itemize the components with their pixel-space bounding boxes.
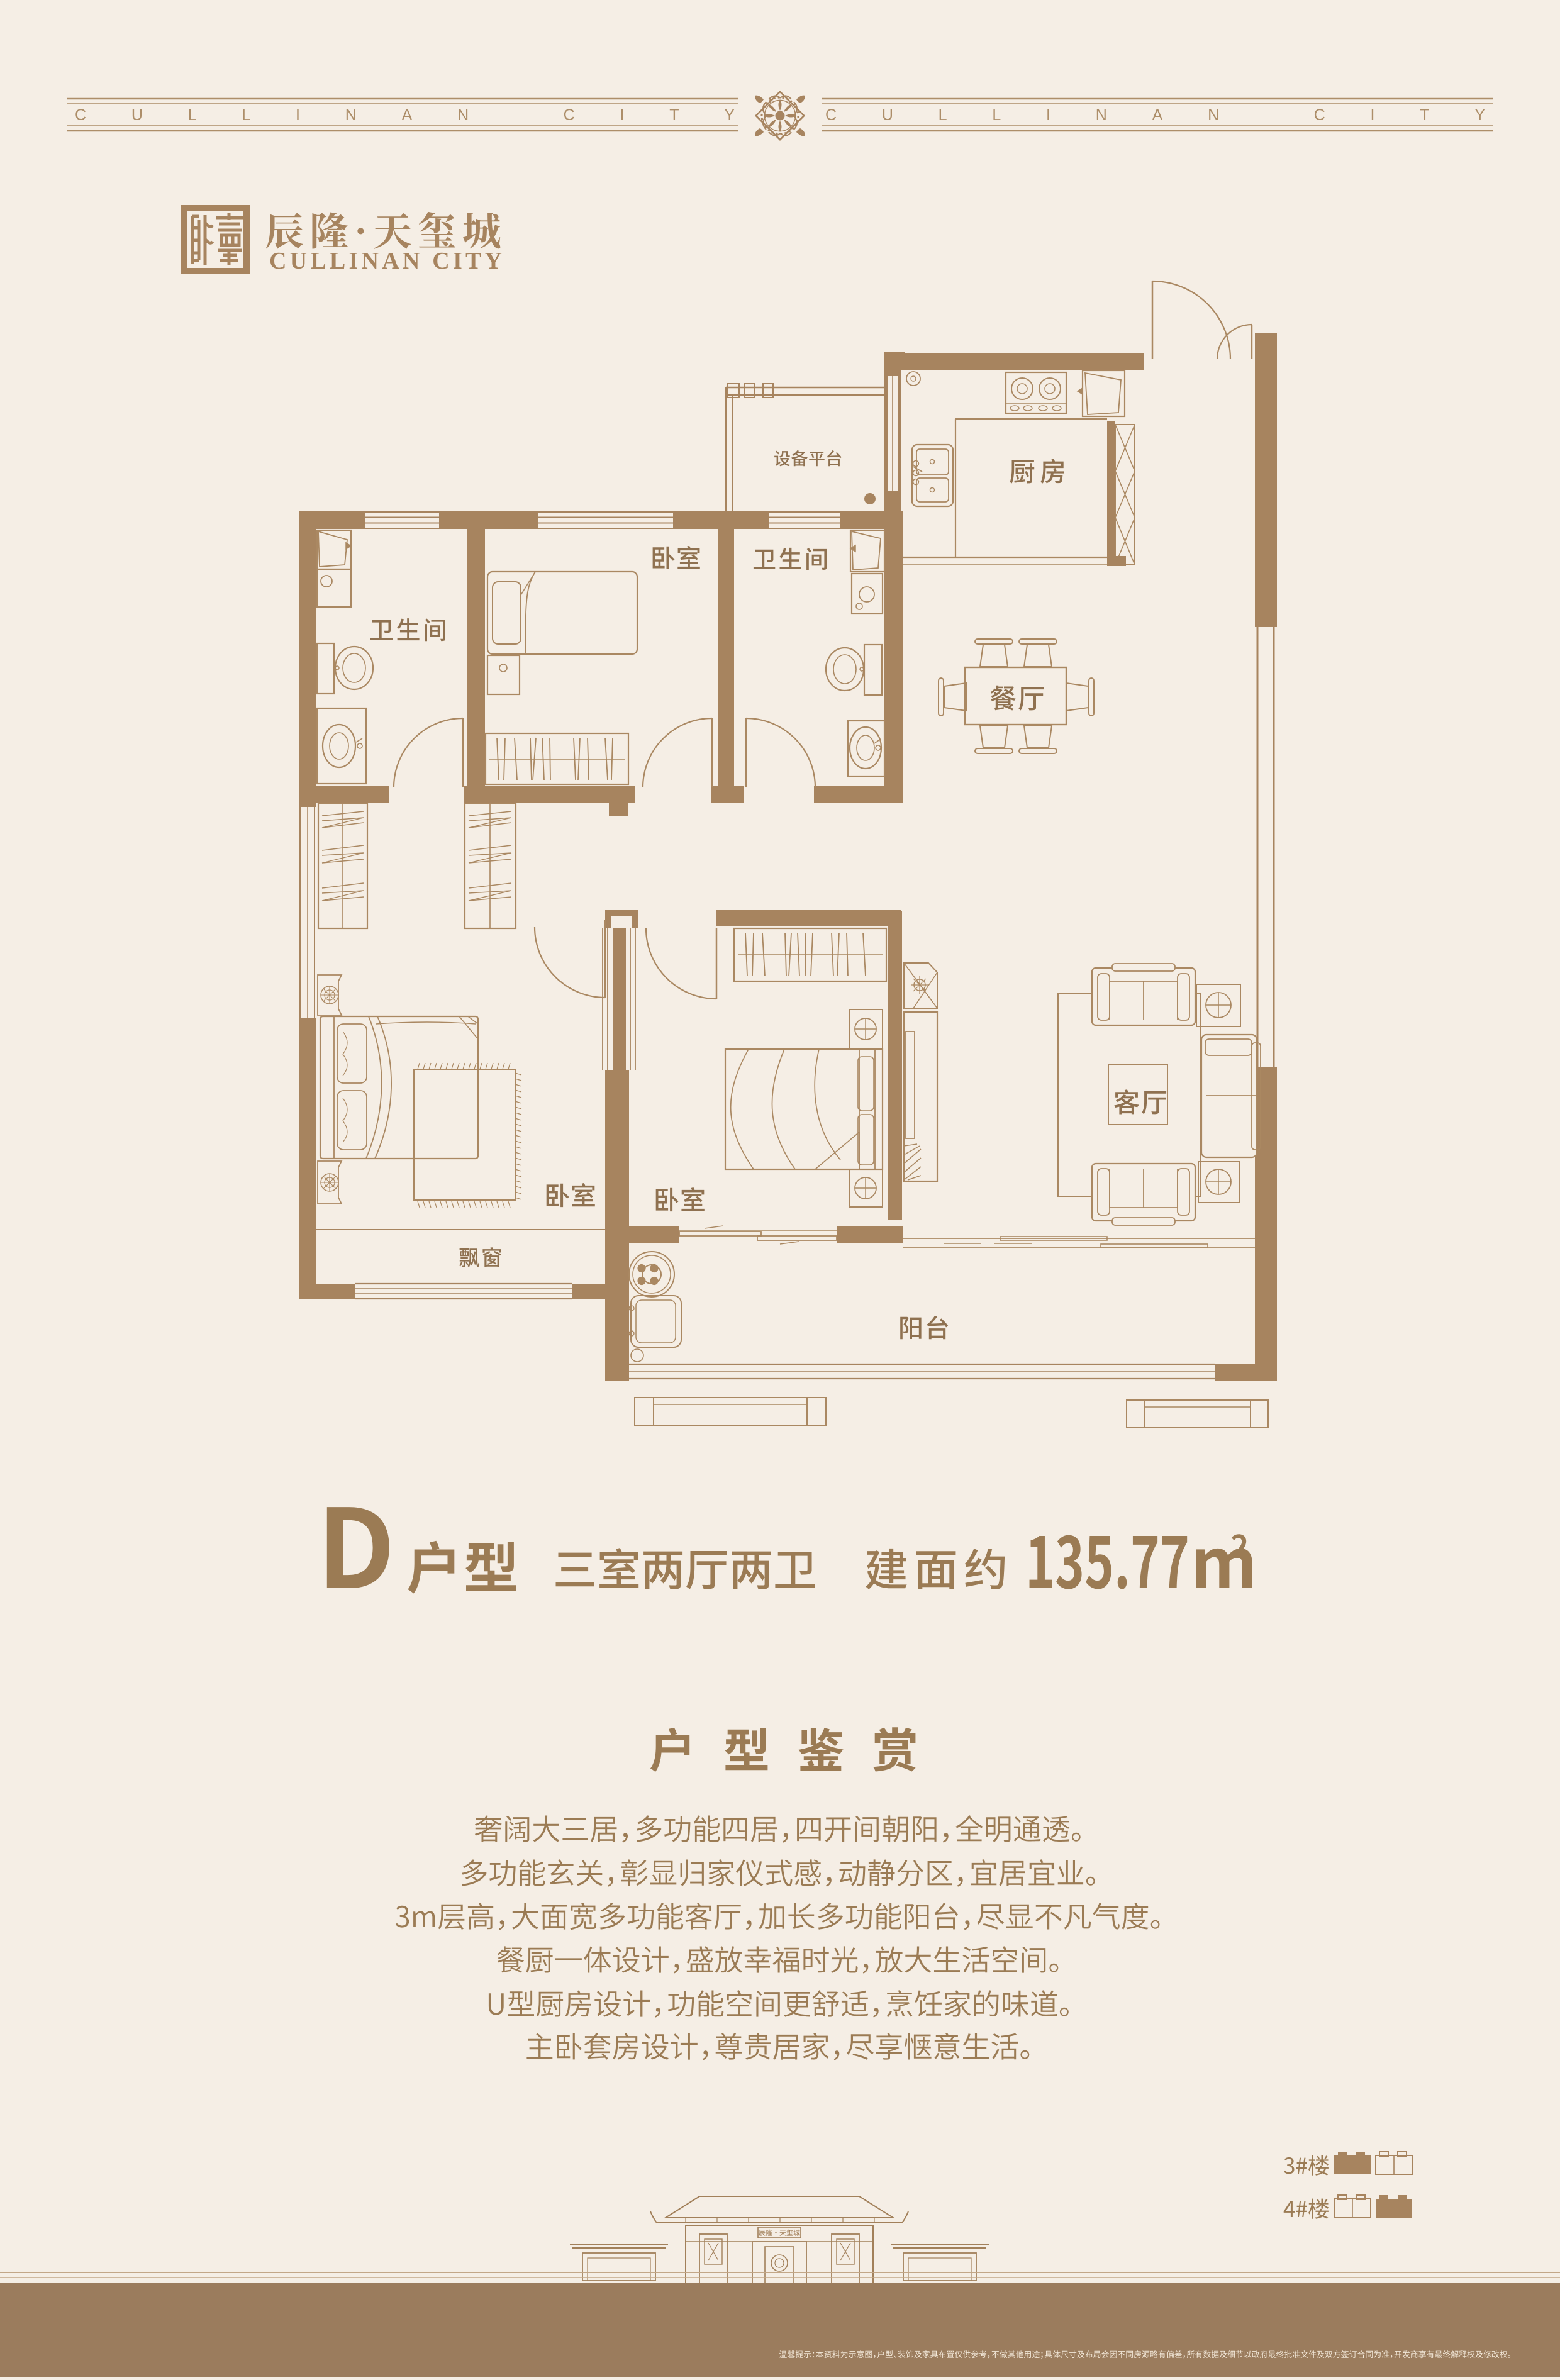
svg-text:CULLINAN CITY: CULLINAN CITY [269,248,502,274]
